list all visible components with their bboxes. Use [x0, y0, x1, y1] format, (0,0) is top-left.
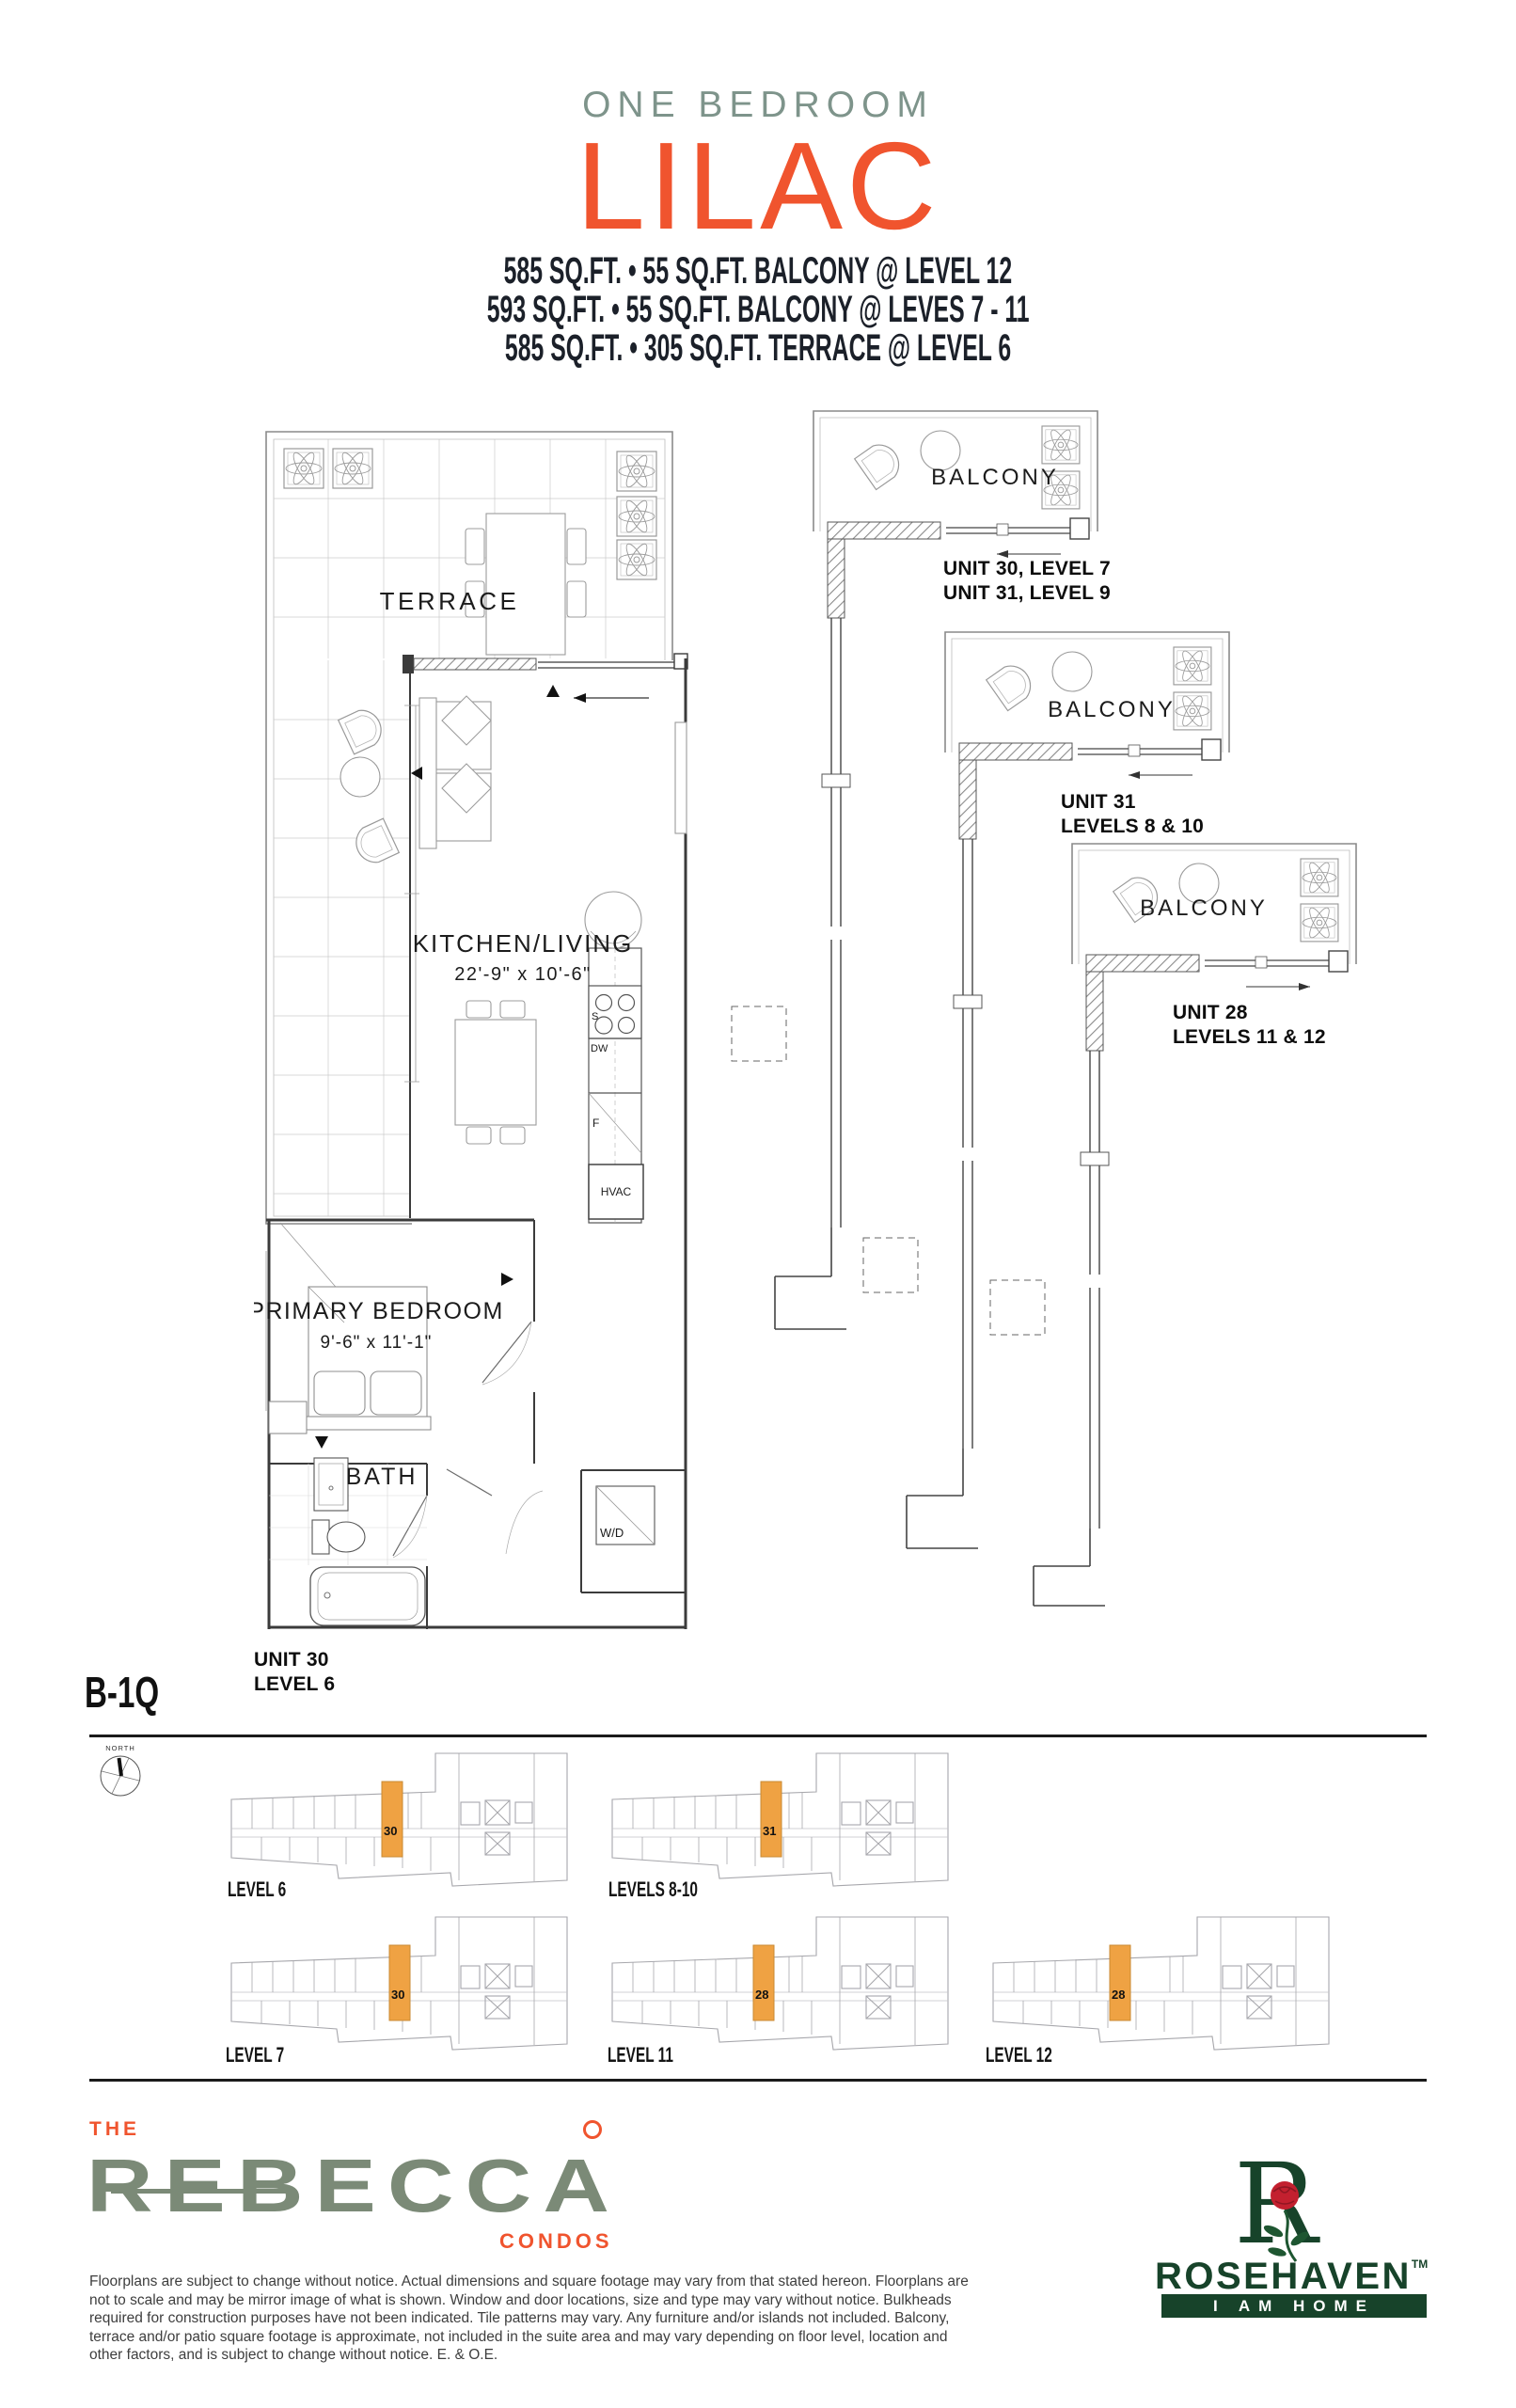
plan-code: B-1Q — [85, 1667, 188, 1718]
sofa — [419, 696, 491, 848]
keyplan-level-12: 28 — [986, 1909, 1334, 2055]
wall-tail — [732, 539, 850, 1329]
bath-label: BATH — [346, 1464, 418, 1490]
spec-line-1: 585 SQ.FT. • 55 SQ.FT. BALCONY @ LEVEL 1… — [504, 252, 1013, 291]
dishwasher-label: DW — [591, 1043, 608, 1054]
tv-unit — [675, 722, 687, 833]
spec-line-3: 585 SQ.FT. • 305 SQ.FT. TERRACE @ LEVEL … — [505, 329, 1011, 368]
keyplan-level-6: 30 — [224, 1746, 572, 1892]
keyplan-level-7-label: LEVEL 7 — [226, 2043, 309, 2067]
compass-north-label: NORTH — [105, 1744, 135, 1752]
balcony-label: BALCONY — [931, 465, 1059, 490]
balcony-wall-band — [828, 518, 1089, 558]
keyplan-level-7: 30 — [224, 1909, 572, 2055]
stove-label: S — [592, 1011, 598, 1022]
compass-icon: NORTH — [94, 1742, 150, 1800]
main-unit-line1: UNIT 30 — [254, 1648, 335, 1672]
brand-ring-icon — [583, 2120, 602, 2139]
brand-condos-label: CONDOS — [499, 2229, 613, 2254]
balcony-wall-band — [1086, 951, 1348, 990]
brand-strike-line — [111, 2189, 290, 2194]
balcony-label: BALCONY — [1048, 697, 1176, 722]
keyplan-level-12-label: LEVEL 12 — [986, 2043, 1081, 2067]
keyplan-unit-number: 28 — [755, 1988, 768, 2002]
keyplan-level-11: 28 — [605, 1909, 953, 2055]
variant2-line1: UNIT 31 — [1061, 790, 1204, 815]
keyplan-level-11-label: LEVEL 11 — [608, 2043, 702, 2067]
brand-the-label: THE — [89, 2118, 140, 2141]
keyplan-levels-8-10: 31 — [605, 1746, 953, 1892]
keyplan-levels-8-10-label: LEVELS 8-10 — [608, 1877, 736, 1902]
variant3-line2: LEVELS 11 & 12 — [1173, 1025, 1326, 1050]
disclaimer-text: Floorplans are subject to change without… — [89, 2273, 981, 2365]
plan-specs: 585 SQ.FT. • 55 SQ.FT. BALCONY @ LEVEL 1… — [0, 252, 1516, 368]
keyplan-unit-number: 30 — [391, 1988, 404, 2002]
balcony-label: BALCONY — [1140, 895, 1268, 921]
plan-title: LILAC — [0, 132, 1516, 240]
keyplan-unit-number: 28 — [1112, 1988, 1125, 2002]
kitchen-living-dims: 22'-9" x 10'-6" — [454, 964, 592, 985]
terrace-lounge-set — [339, 705, 400, 867]
rosehaven-tagline-banner: I AM HOME — [1161, 2294, 1427, 2318]
terrace-dining-set — [466, 514, 586, 655]
washer-dryer-label: W/D — [600, 1526, 624, 1540]
divider-footer — [89, 2079, 1427, 2082]
dining-table — [455, 1001, 536, 1144]
variant3-line1: UNIT 28 — [1173, 1001, 1326, 1025]
fridge-label: F — [592, 1117, 599, 1130]
rosehaven-wordmark: ROSEHAVENTM — [1155, 2256, 1428, 2298]
variant3-unit-label: UNIT 28 LEVELS 11 & 12 — [1173, 1001, 1326, 1050]
brand-wordmark: REBECCA — [87, 2147, 621, 2226]
keyplan-unit-number: 31 — [763, 1824, 776, 1838]
floorplan-sheet: ONE BEDROOM LILAC 585 SQ.FT. • 55 SQ.FT.… — [0, 0, 1516, 2408]
wall-tail — [863, 760, 982, 1548]
terrace-label: TERRACE — [380, 587, 520, 615]
hvac-label: HVAC — [601, 1185, 632, 1198]
primary-bedroom-label: PRIMARY BEDROOM — [254, 1298, 504, 1324]
keyplan-level-6-label: LEVEL 6 — [228, 1877, 311, 1902]
rose-icon — [1262, 2178, 1315, 2265]
divider-top — [89, 1735, 1427, 1737]
wall-tail — [990, 972, 1109, 1606]
main-unit-line2: LEVEL 6 — [254, 1672, 335, 1697]
kitchen-living-label: KITCHEN/LIVING — [413, 929, 634, 958]
main-unit-label: UNIT 30 LEVEL 6 — [254, 1648, 335, 1697]
variant1-line1: UNIT 30, LEVEL 7 — [943, 557, 1111, 581]
trademark-symbol: TM — [1412, 2257, 1428, 2271]
balcony-plan-unit28-l11-12: BALCONY — [973, 832, 1378, 1613]
variant1-unit-label: UNIT 30, LEVEL 7 UNIT 31, LEVEL 9 — [943, 557, 1111, 606]
variant1-line2: UNIT 31, LEVEL 9 — [943, 581, 1111, 606]
primary-bedroom-dims: 9'-6" x 11'-1" — [321, 1333, 433, 1353]
main-floorplan-drawing: TERRACE KITCHEN/LIVING 22'-9" x 10'-6" P… — [254, 423, 724, 1637]
spec-line-2: 593 SQ.FT. • 55 SQ.FT. BALCONY @ LEVES 7… — [487, 291, 1030, 329]
balcony-wall-band — [959, 739, 1221, 779]
keyplan-unit-number: 30 — [384, 1824, 397, 1838]
rosehaven-tagline: I AM HOME — [1213, 2297, 1375, 2315]
